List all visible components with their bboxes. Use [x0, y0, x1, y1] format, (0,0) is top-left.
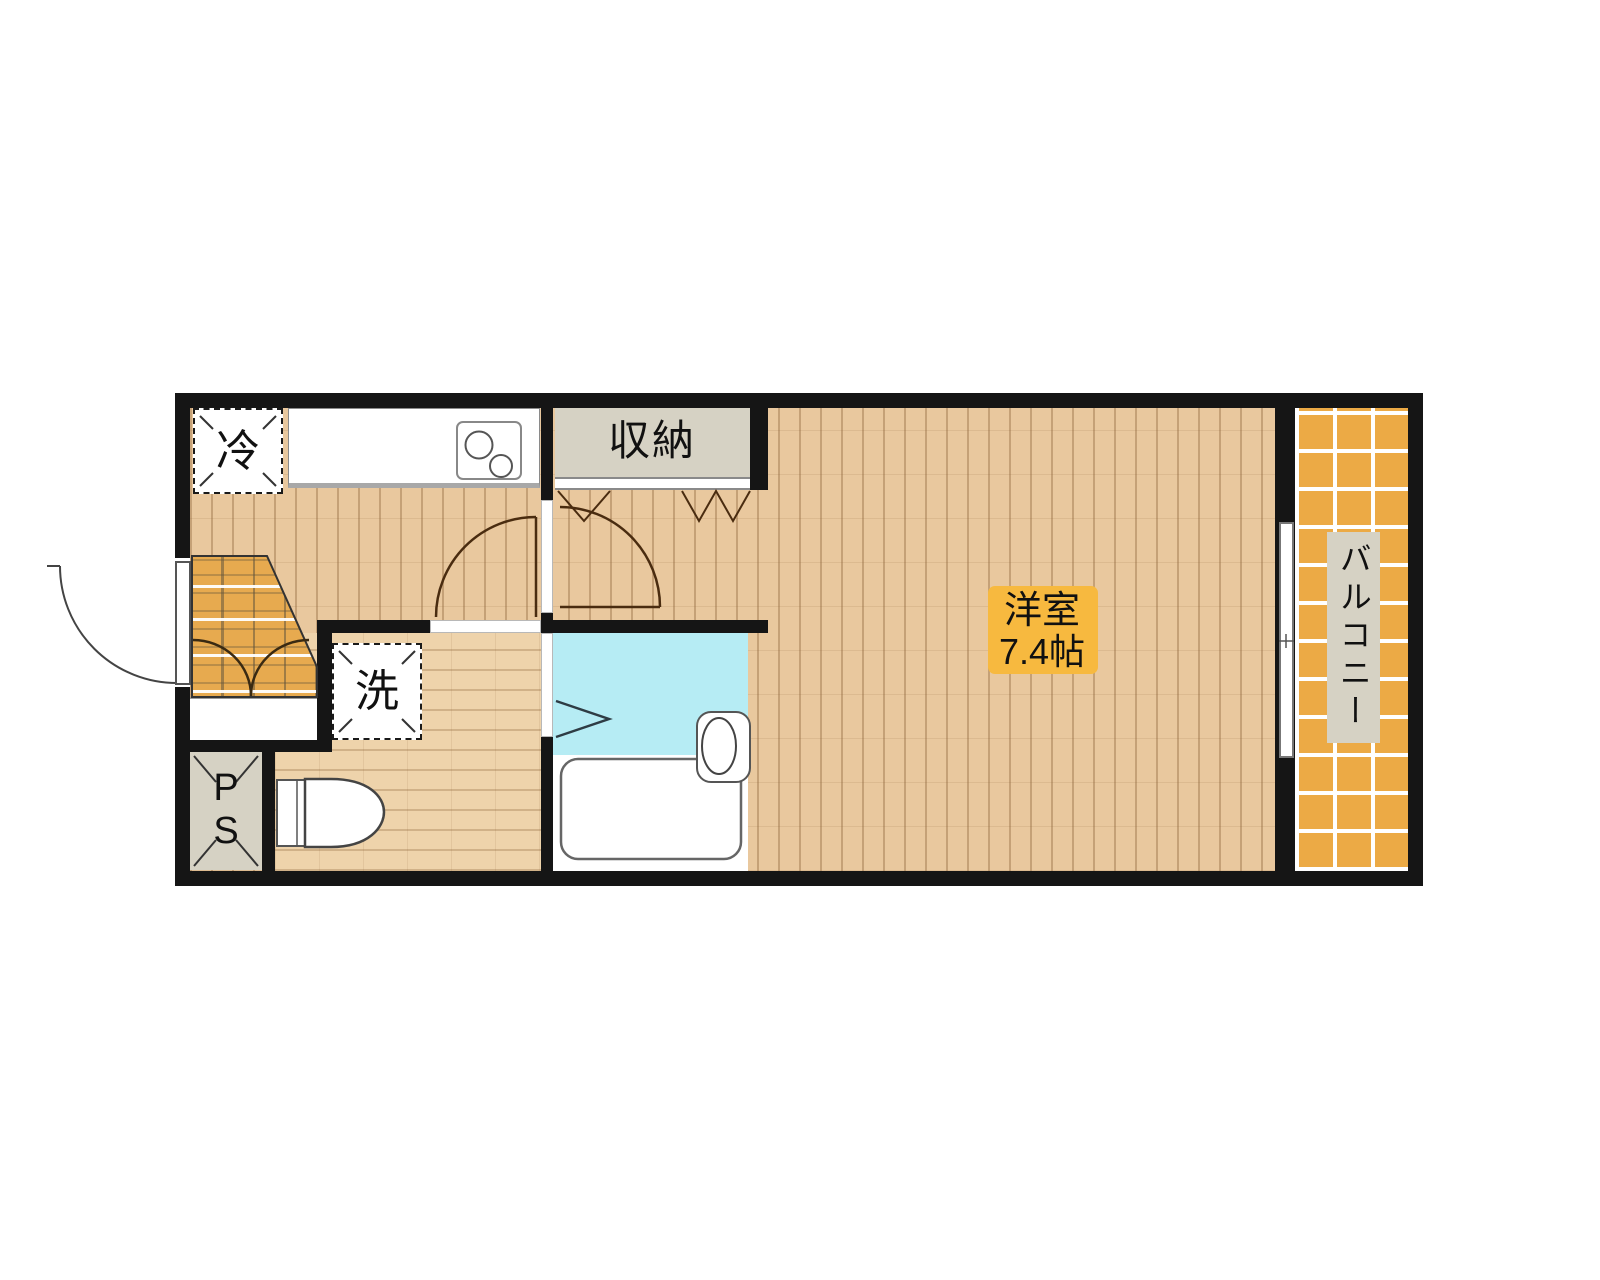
wall-step-bottom: [175, 740, 332, 752]
wall-ps-right: [262, 752, 275, 871]
wall-left-upper: [175, 393, 190, 558]
refrigerator-label: 冷: [216, 429, 260, 475]
wall-bathroom-top: [553, 620, 768, 633]
main-room-size: 7.4帖: [999, 633, 1085, 671]
washroom-door-sill: [430, 620, 541, 633]
floor-plan-page: 冷 収納 洗 P S 洋室 7.4帖 バルコニー: [0, 0, 1600, 1280]
entrance-door-arc: [60, 566, 177, 683]
balcony-window: [1279, 522, 1294, 758]
wall-left-lower: [175, 687, 190, 871]
storage-sliding-door: [555, 477, 750, 490]
entrance-step: [178, 697, 317, 740]
wall-top: [175, 393, 1423, 408]
wall-right: [1408, 393, 1423, 886]
kitchen-counter: [288, 408, 540, 488]
wall-kitchen-hall-mid: [541, 613, 553, 633]
entrance-door-leaf: [176, 562, 190, 684]
wall-bottom: [175, 871, 1423, 886]
wall-storage-right: [750, 393, 768, 490]
wall-entrance-right: [317, 633, 332, 752]
wall-washroom-top: [317, 620, 430, 633]
main-room-name: 洋室: [1004, 592, 1080, 632]
pipe-space-label-p: P: [213, 769, 238, 809]
wall-kitchen-hall-upper: [541, 408, 553, 500]
bathtub-area: [553, 755, 748, 871]
washer-label: 洗: [355, 669, 399, 715]
hall-door-sill: [541, 500, 553, 613]
bathroom-floor: [553, 633, 748, 755]
wall-washroom-bath: [541, 737, 553, 871]
bathroom-door-sill: [541, 633, 553, 737]
pipe-space-label-s: S: [213, 812, 238, 852]
storage-label: 収納: [608, 419, 696, 463]
balcony-label: バルコニー: [1336, 542, 1370, 732]
